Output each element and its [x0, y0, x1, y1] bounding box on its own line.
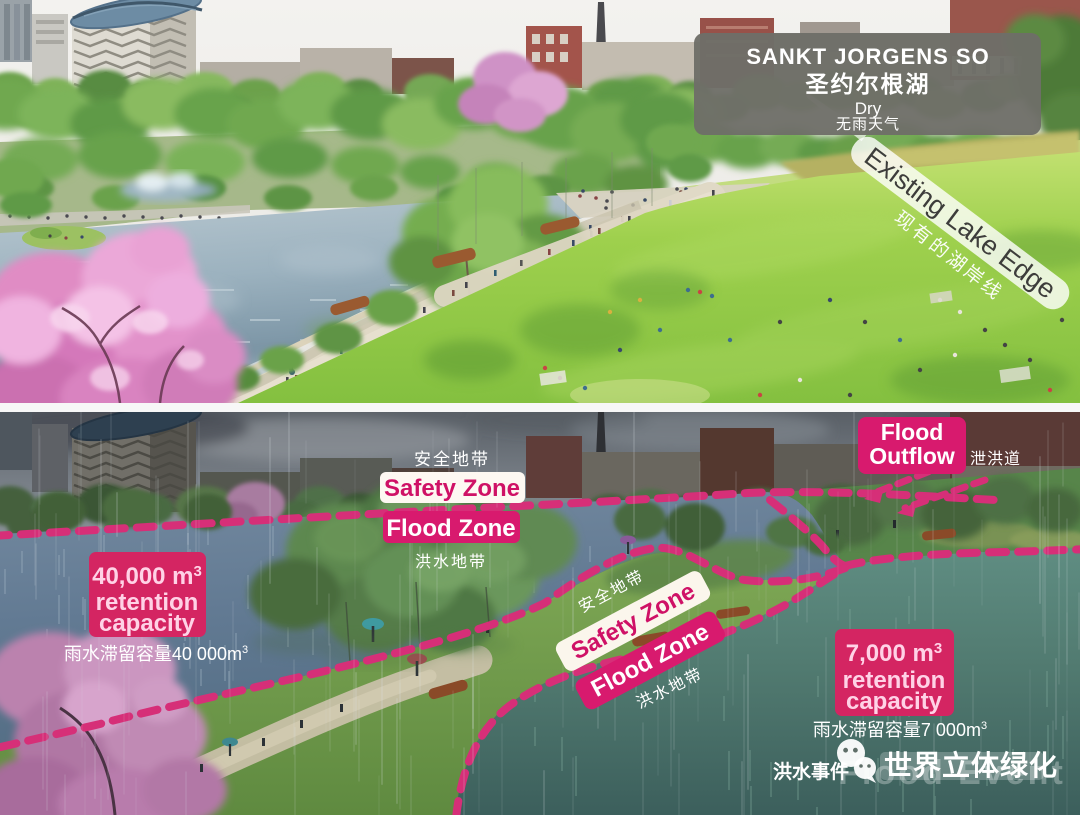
- svg-text:安全地带: 安全地带: [414, 450, 490, 469]
- svg-text:capacity: capacity: [99, 610, 196, 637]
- svg-text:雨水滞留容量40 000m3: 雨水滞留容量40 000m3: [64, 644, 248, 664]
- svg-text:Outflow: Outflow: [869, 443, 955, 469]
- svg-text:泄洪道: 泄洪道: [970, 450, 1021, 468]
- svg-text:capacity: capacity: [846, 688, 943, 715]
- svg-text:雨水滞留容量7 000m3: 雨水滞留容量7 000m3: [813, 720, 987, 740]
- svg-text:无雨天气: 无雨天气: [836, 116, 900, 133]
- svg-text:40,000 m3: 40,000 m3: [92, 563, 202, 590]
- svg-text:圣约尔根湖: 圣约尔根湖: [806, 71, 931, 97]
- svg-text:SANKT JORGENS SO: SANKT JORGENS SO: [746, 44, 989, 69]
- svg-text:Flood: Flood: [881, 419, 944, 445]
- svg-text:Safety Zone: Safety Zone: [384, 475, 520, 502]
- svg-text:Flood Zone: Flood Zone: [386, 515, 515, 542]
- svg-text:洪水地带: 洪水地带: [415, 553, 487, 571]
- svg-text:洪水事件: 洪水事件: [773, 760, 849, 783]
- svg-text:世界立体绿化: 世界立体绿化: [884, 749, 1058, 781]
- svg-text:7,000 m3: 7,000 m3: [846, 640, 942, 667]
